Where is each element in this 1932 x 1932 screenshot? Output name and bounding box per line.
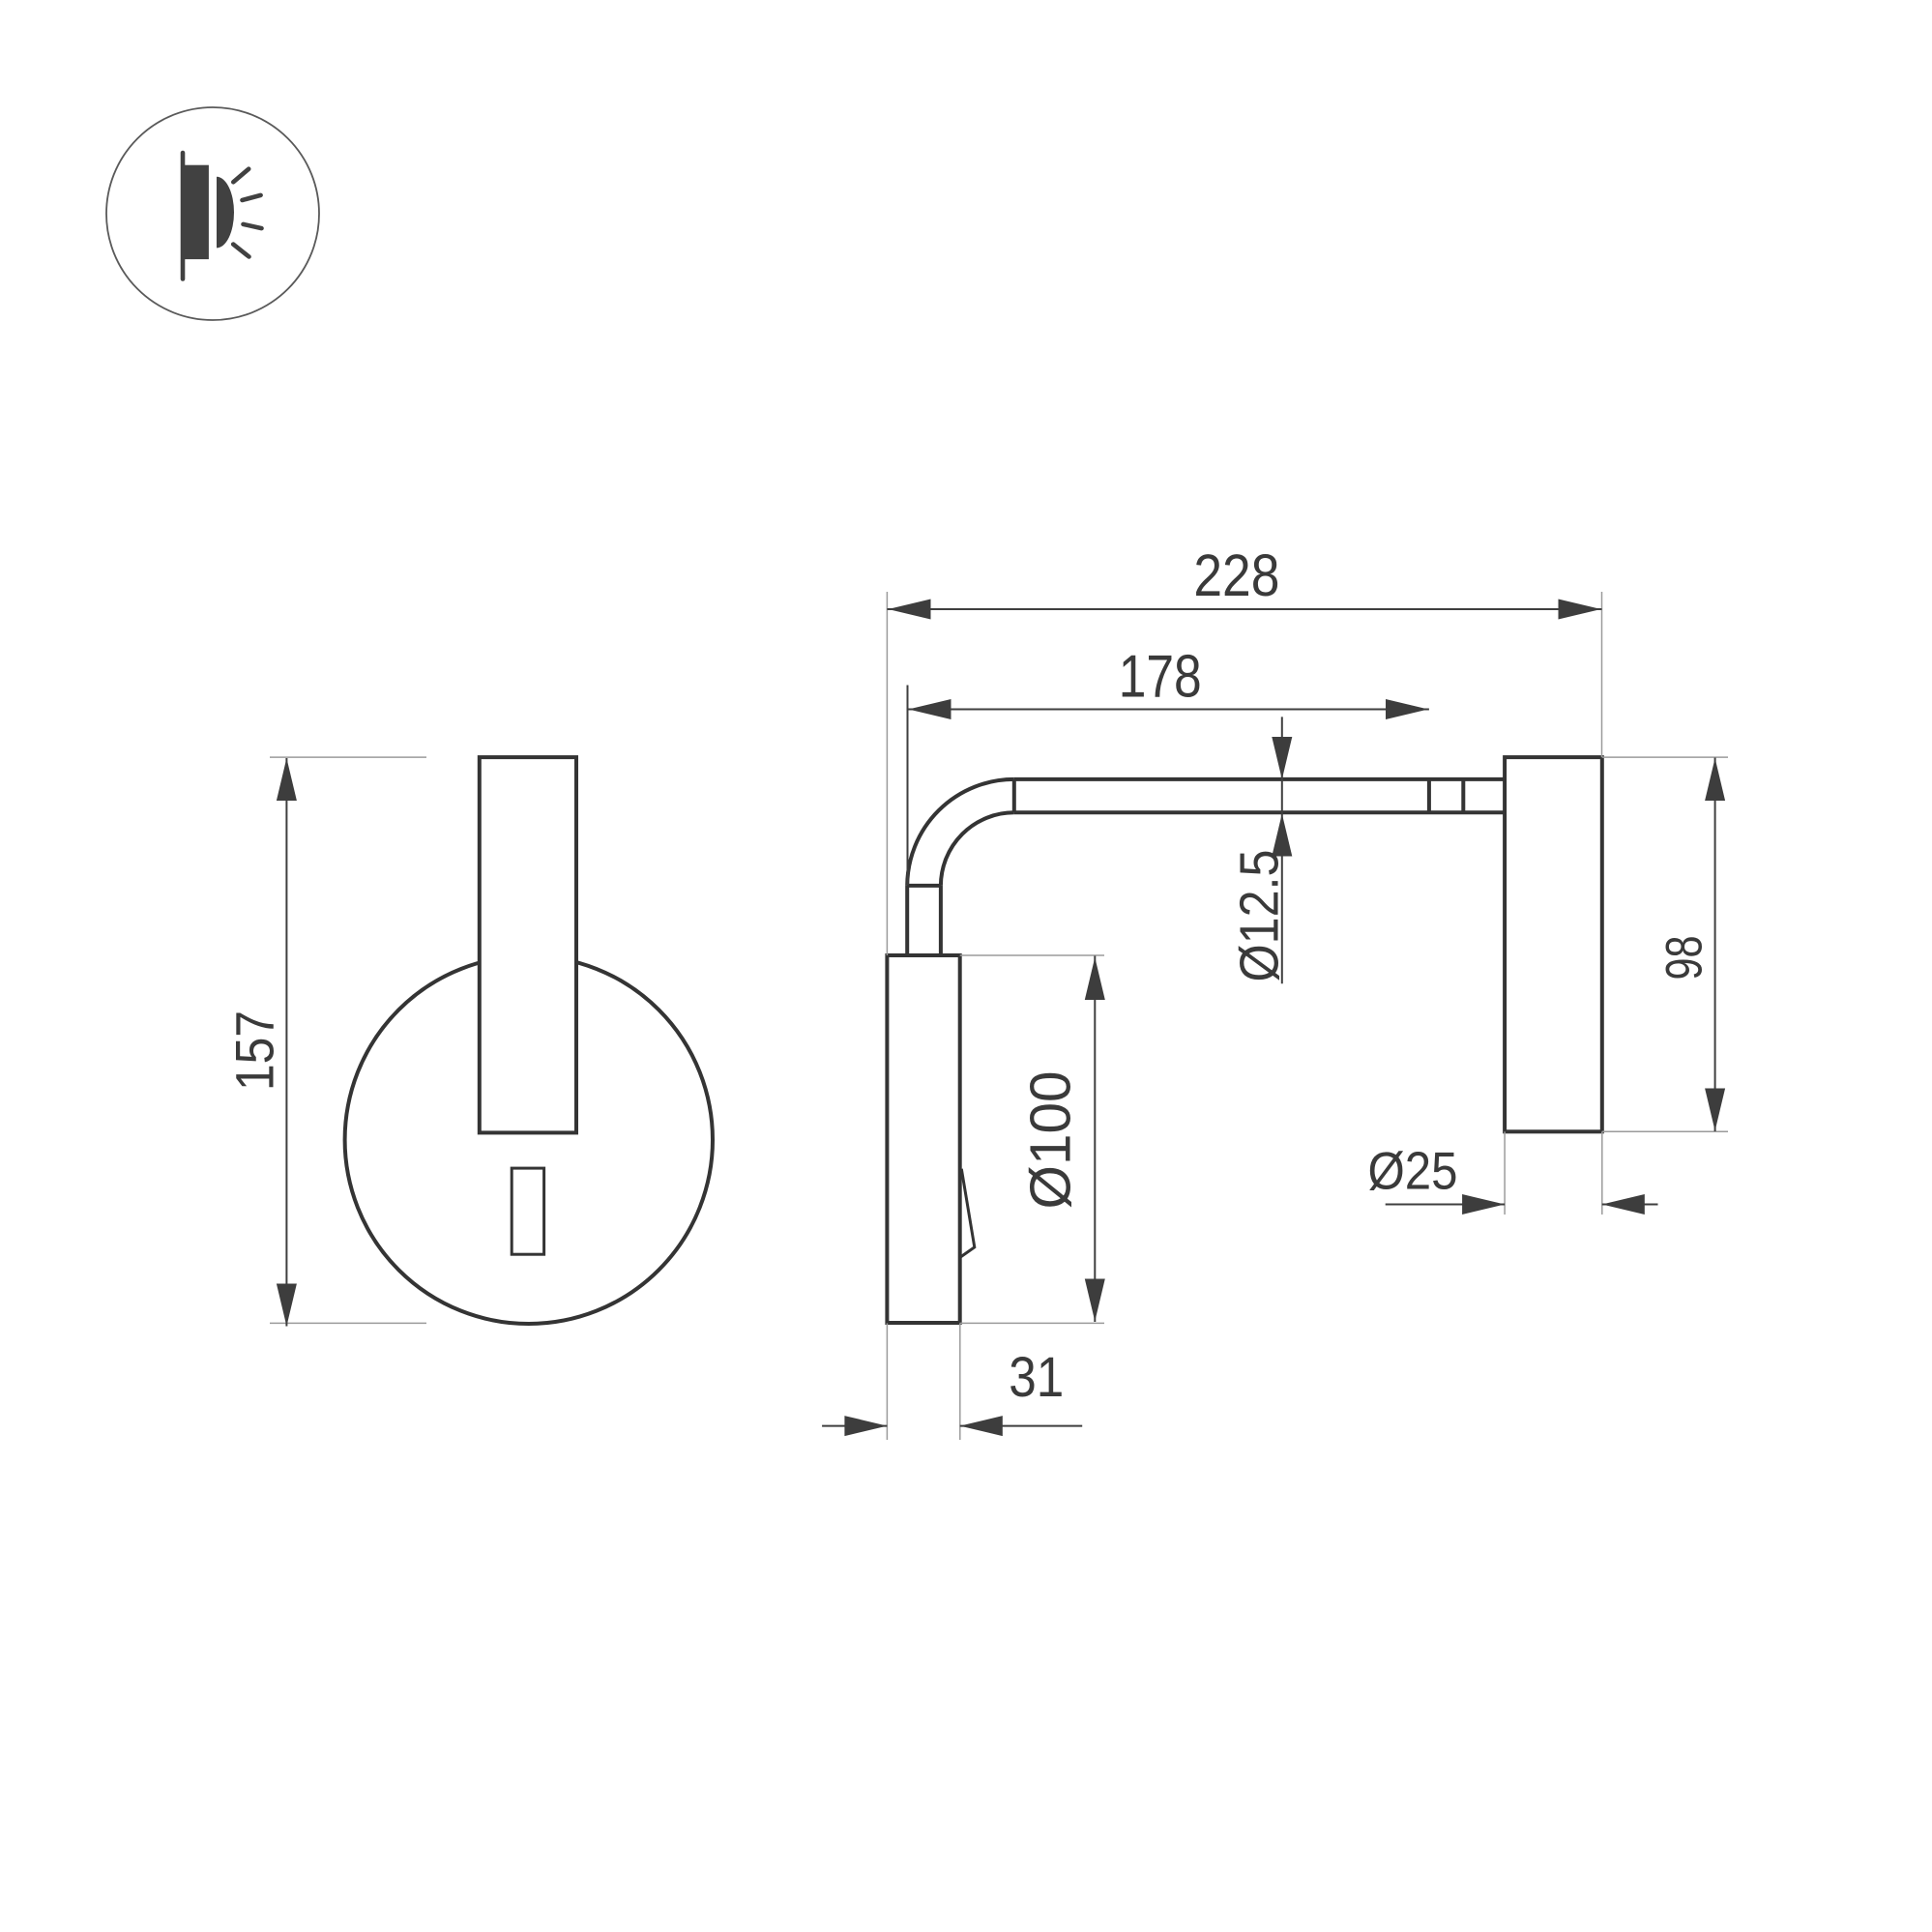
svg-text:98: 98 xyxy=(1656,936,1713,981)
svg-text:Ø12.5: Ø12.5 xyxy=(1229,850,1291,982)
svg-text:Ø25: Ø25 xyxy=(1368,1141,1458,1201)
svg-text:157: 157 xyxy=(224,1010,285,1091)
svg-text:178: 178 xyxy=(1119,643,1202,710)
svg-text:Ø100: Ø100 xyxy=(1019,1071,1083,1210)
svg-text:31: 31 xyxy=(1009,1346,1064,1409)
svg-text:228: 228 xyxy=(1193,542,1279,608)
